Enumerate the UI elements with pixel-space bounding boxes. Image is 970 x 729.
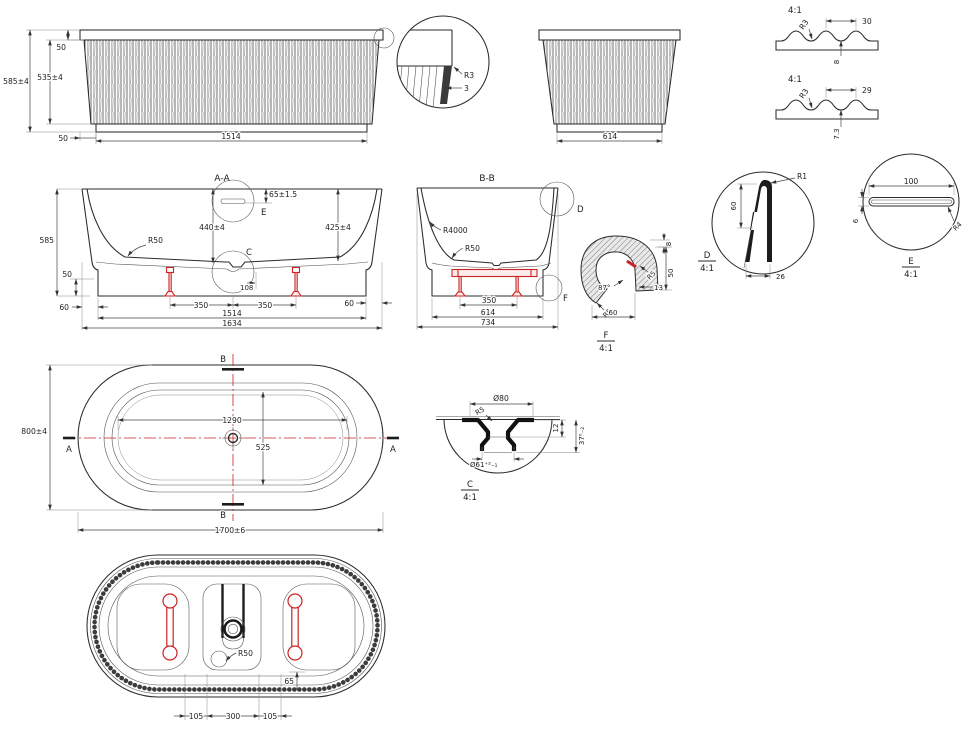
dim-bottom-right: 105 [263, 712, 278, 721]
section-aa-title: A-A [214, 173, 230, 184]
rim-detail-view: R3 3 [374, 16, 489, 108]
dim-bb-width-overall: 734 [481, 318, 496, 327]
dim-e-height: 6 [852, 218, 860, 223]
dim-d-width: 26 [776, 273, 785, 281]
flute-profile-side-detail: 4:1 29 R3 7.3 [776, 75, 878, 140]
dim-front-rim-height: 50 [56, 43, 66, 52]
dim-bottom-edge: 65 [284, 677, 294, 686]
aa-detail-e-label: E [261, 208, 266, 218]
dim-aa-inset-right: 60 [344, 299, 354, 308]
bb-detail-f-label: F [563, 294, 568, 304]
dim-aa-inset-left: 60 [59, 303, 69, 312]
dim-c-outer: Ø80 [493, 394, 509, 403]
flute-side-scale: 4:1 [788, 75, 802, 85]
bottom-channel-end [223, 638, 244, 649]
dim-front-height-overall: 585±4 [3, 77, 29, 86]
dim-front-base-inset: 50 [58, 134, 68, 143]
dim-f-width: 60 [609, 309, 618, 317]
detail-c-drain-wall-left [462, 420, 488, 451]
bottom-drain-hole [228, 624, 238, 634]
detail-d-label: D [704, 251, 711, 261]
dim-c-depth: 37⁰₋₂ [578, 427, 586, 445]
side-elevation-view: 614 [539, 30, 680, 144]
front-rim [80, 30, 383, 40]
plan-section-b-tick-top [222, 368, 244, 371]
plan-outer-rim [78, 365, 383, 510]
dim-aa-height: 585 [40, 236, 55, 245]
dim-f-rim: 8 [665, 242, 673, 246]
plan-section-b-top: B [220, 355, 226, 365]
flute-front-profile-shape [776, 31, 878, 50]
dim-plan-inner-length: 1290 [222, 416, 241, 425]
bottom-bead-inner [99, 567, 373, 685]
plan-section-a-right: A [390, 445, 396, 455]
detail-e-view: 100 6 R4 E 4:1 [852, 154, 964, 280]
detail-e-overflow-slot [869, 198, 954, 207]
dim-bb-feet: 350 [482, 296, 497, 305]
front-elevation-view: 585±4 535±4 50 50 1514 [3, 30, 383, 144]
detail-f-view: 8 R5 87° 13 50 R5 60 F 4:1 [581, 233, 675, 354]
flute-front-scale: 4:1 [788, 6, 802, 16]
aa-shell-underside [96, 262, 368, 272]
dim-front-width-base: 1514 [221, 132, 240, 141]
side-base [557, 124, 662, 132]
dim-aa-overflow: 65±1.5 [269, 190, 297, 199]
aa-detail-e-circle [212, 180, 254, 222]
dim-aa-drain-offset: 108 [240, 284, 253, 292]
dim-aa-depth-center: 440±4 [199, 223, 225, 232]
dim-front-height-body: 535±4 [37, 73, 63, 82]
bottom-view: R50 65 105 300 105 [87, 555, 385, 721]
plan-section-b-bottom: B [220, 511, 226, 521]
section-bb-view: B-B D F R4000 R50 350 614 734 [417, 173, 584, 330]
section-bb-title: B-B [479, 173, 495, 184]
bb-support-frame [452, 270, 537, 297]
dim-aa-skirt: 50 [62, 270, 72, 279]
front-fluted-body [84, 40, 379, 124]
dim-bb-width-base: 614 [481, 308, 496, 317]
aa-overflow-slot [221, 199, 245, 204]
dim-bottom-center: 300 [226, 712, 241, 721]
plan-section-a-left: A [66, 445, 72, 455]
detail-e-scale: 4:1 [904, 270, 918, 280]
bottom-bead-ring [95, 563, 378, 690]
dim-flute-side-pitch: 29 [862, 86, 872, 95]
side-rim [539, 30, 680, 40]
detail-d-scale: 4:1 [700, 264, 714, 274]
rim-detail-radius: R3 [464, 71, 474, 80]
side-fluted-body [543, 40, 676, 124]
detail-c-scale: 4:1 [463, 493, 477, 503]
detail-e-bubble [863, 154, 959, 250]
dim-plan-width: 800±4 [21, 427, 47, 436]
detail-c-radius: R5 [474, 405, 486, 417]
bottom-radius-channel: R50 [238, 649, 253, 658]
bottom-pocket-left [117, 584, 189, 670]
section-aa-view: A-A 65±1.5 E 440±4 425±4 R50 C 108 585 5… [40, 173, 393, 330]
detail-c-view: Ø80 R5 12 37⁰₋₂ Ø61⁺²₋₁ C 4:1 [436, 394, 586, 503]
dim-c-step: 12 [552, 424, 560, 433]
bottom-bead-outer [91, 559, 382, 694]
dim-bottom-left: 105 [189, 712, 204, 721]
detail-c-bubble [444, 419, 552, 473]
detail-d-radius-tip: R1 [797, 172, 807, 181]
flute-side-profile-shape [776, 100, 878, 119]
dim-f-offset: 13 [654, 284, 663, 292]
bb-radius-floor: R50 [465, 244, 480, 253]
dim-d-height: 60 [730, 202, 738, 211]
cad-drawing-sheet: 585±4 535±4 50 50 1514 R3 3 614 4:1 30 R… [0, 0, 970, 729]
detail-d-view: R1 60 26 D 4:1 [698, 172, 814, 281]
detail-d-rim-profile [745, 180, 772, 262]
plan-section-a-tick-left [63, 437, 75, 440]
dim-plan-inner-width: 525 [256, 443, 271, 452]
dim-flute-front-pitch: 30 [862, 17, 872, 26]
plan-section-a-tick-right [387, 437, 399, 440]
plan-section-b-tick-bottom [222, 503, 244, 506]
dim-aa-foot-right: 350 [258, 301, 273, 310]
detail-c-label: C [467, 480, 473, 490]
aa-outer-shell [82, 189, 382, 296]
flute-front-radius: R3 [797, 18, 810, 32]
detail-e-radius-corner: R4 [951, 220, 964, 233]
dim-flute-front-depth: 8 [833, 60, 841, 64]
detail-e-label: E [908, 257, 913, 267]
dim-f-height: 50 [667, 269, 675, 278]
dim-aa-foot-left: 350 [194, 301, 209, 310]
bb-inner-bowl [421, 188, 554, 266]
dim-aa-depth-wall: 425±4 [325, 223, 351, 232]
dim-aa-width-base: 1514 [222, 309, 241, 318]
front-base [96, 124, 367, 132]
bottom-bracket-right [288, 594, 302, 660]
bb-radius-wall: R4000 [443, 226, 468, 235]
bb-shell-underside [432, 263, 551, 270]
flute-side-radius: R3 [797, 87, 810, 101]
detail-f-scale: 4:1 [599, 344, 613, 354]
bottom-drain-ring [225, 621, 242, 638]
detail-c-drain-wall-right [508, 420, 534, 451]
dim-e-length: 100 [904, 177, 919, 186]
plan-view: B B A A 1290 525 800±4 1700±6 [21, 354, 399, 535]
dim-plan-length: 1700±6 [215, 526, 246, 535]
bottom-channel-radius-circle [211, 651, 227, 667]
detail-f-section-shape [581, 236, 658, 303]
detail-d-bubble [712, 172, 814, 274]
plan-interior-floor [118, 395, 343, 480]
aa-radius-floor: R50 [148, 236, 163, 245]
detail-f-label: F [604, 331, 609, 341]
bottom-bracket-left [163, 594, 177, 660]
flute-profile-front-detail: 4:1 30 R3 8 [776, 6, 878, 64]
dim-flute-side-depth: 7.3 [833, 128, 841, 139]
rim-detail-thickness: 3 [464, 84, 469, 93]
plan-interior-wall [112, 390, 349, 485]
bathtub-technical-drawing: 585±4 535±4 50 50 1514 R3 3 614 4:1 30 R… [0, 0, 970, 729]
detail-e-slot-inner [872, 200, 952, 204]
dim-c-inner: Ø61⁺²₋₁ [470, 461, 498, 469]
bottom-pocket-right [283, 584, 355, 670]
detail-f-angle: 87° [598, 284, 610, 292]
aa-detail-c-label: C [246, 248, 252, 258]
dim-side-width-base: 614 [603, 132, 618, 141]
bottom-base-edge [108, 576, 364, 676]
bb-detail-d-label: D [577, 205, 584, 215]
dim-aa-width-overall: 1634 [222, 319, 241, 328]
rim-detail-flute-edge [440, 66, 452, 104]
